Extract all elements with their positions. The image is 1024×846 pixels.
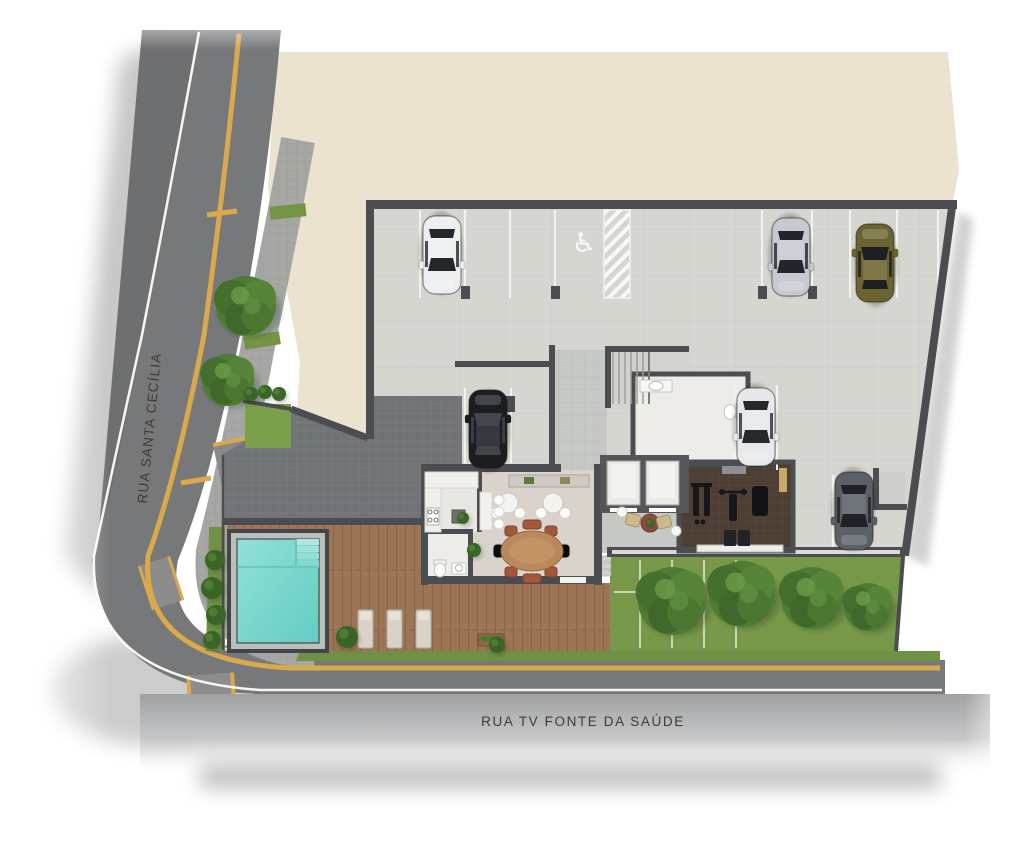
car-silver-top — [768, 214, 814, 296]
pool-steps — [296, 539, 319, 567]
car-gray-bottom — [831, 468, 877, 550]
stairs — [613, 352, 649, 404]
frontage-grass-strip — [296, 651, 940, 661]
swimming-pool — [227, 529, 329, 653]
gym-window-band — [697, 545, 783, 552]
car-olive-top — [852, 224, 898, 306]
storage-room-floor — [879, 472, 905, 504]
accessible-parking-icon: ♿ — [572, 228, 596, 258]
street-bottom-fade — [140, 694, 990, 776]
lounge-chairs — [358, 610, 431, 648]
stove — [427, 508, 439, 525]
lawn — [245, 404, 291, 448]
bush — [272, 387, 288, 403]
site-plan: ♿ — [0, 0, 1024, 846]
site-plan-canvas: ♿ — [0, 0, 1024, 846]
car-black-middle — [465, 390, 511, 472]
car-white-middle — [733, 384, 779, 466]
elevators — [600, 455, 689, 513]
car-white-top — [419, 212, 465, 294]
street-label-bottom: RUA TV FONTE DA SAÚDE — [481, 714, 685, 729]
hatched-no-parking-strip — [604, 210, 630, 298]
